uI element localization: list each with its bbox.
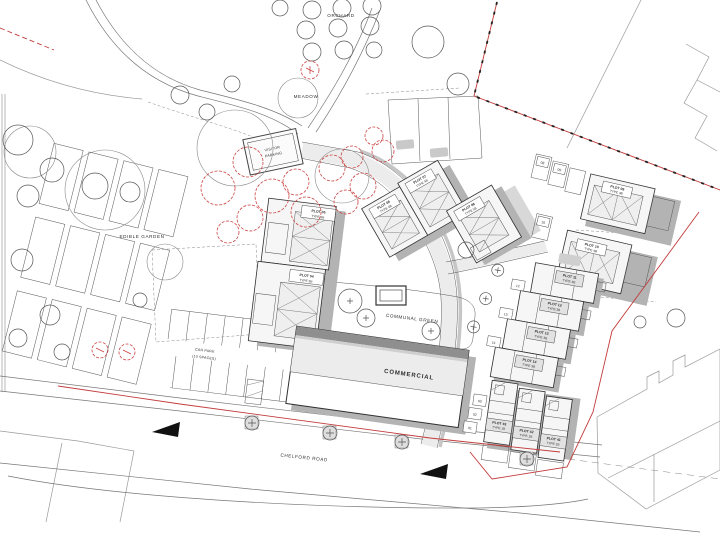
bay-number-03: 03	[478, 399, 482, 404]
parked-car	[430, 147, 449, 158]
meadow-paths	[86, 0, 380, 142]
road-arrow	[152, 422, 180, 437]
pergola	[376, 286, 406, 305]
label-communal-green: COMMUNAL GREEN	[386, 313, 439, 324]
label-car-park-spaces: (10 SPACES)	[192, 354, 216, 361]
court-plots-06-07	[388, 96, 482, 164]
road-arrows	[152, 422, 448, 479]
label-meadow: MEADOW	[294, 94, 319, 99]
site-plan-drawing: CAR PARK (10 SPACES) PL	[0, 0, 720, 540]
proposed-trees	[92, 61, 394, 360]
road-arrow	[420, 464, 448, 479]
label-orchard: ORCHARD	[327, 13, 355, 18]
bay-number-02: 02	[473, 413, 477, 418]
edible-garden-beds	[2, 143, 188, 384]
label-edible-garden: EDIBLE GARDEN	[119, 234, 164, 239]
parked-car	[396, 139, 415, 150]
label-car-park: CAR PARK	[195, 347, 215, 353]
site-plan-page: CAR PARK (10 SPACES) PL	[0, 0, 720, 540]
bay-number-01: 01	[468, 426, 472, 431]
label-chelford-road: CHELFORD ROAD	[280, 453, 328, 463]
